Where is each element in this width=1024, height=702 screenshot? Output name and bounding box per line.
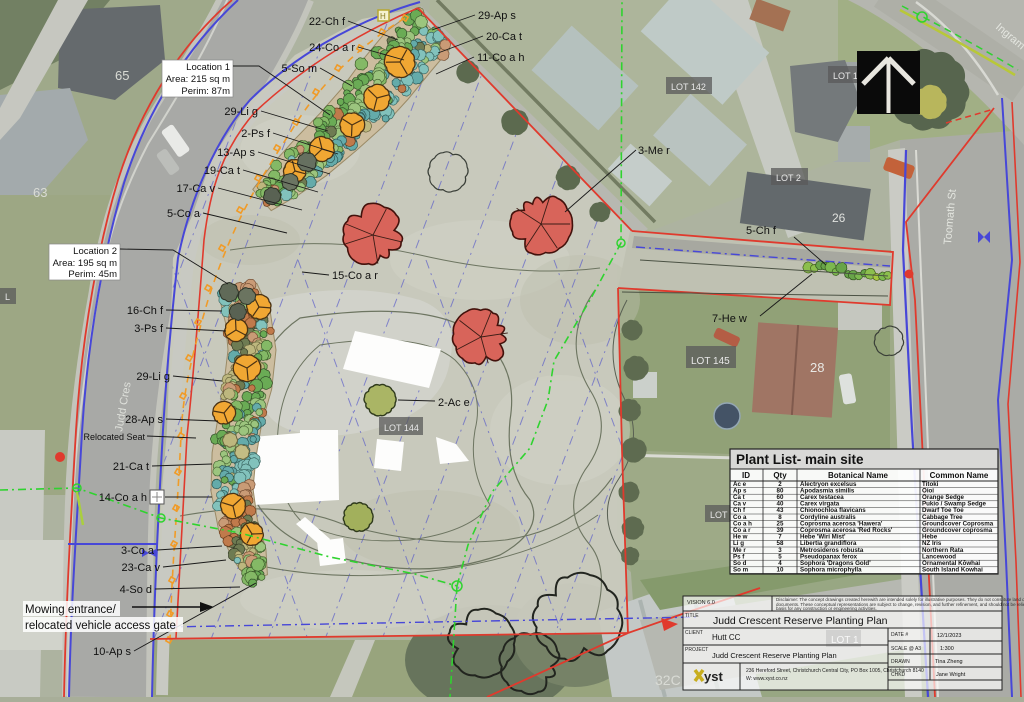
svg-text:TITLE: TITLE bbox=[685, 613, 699, 619]
svg-text:LOT 142: LOT 142 bbox=[671, 82, 706, 92]
svg-text:Tina Zheng: Tina Zheng bbox=[935, 659, 963, 665]
svg-text:LOT 145: LOT 145 bbox=[691, 356, 730, 367]
svg-text:2-Ac e: 2-Ac e bbox=[438, 397, 470, 409]
svg-text:32C: 32C bbox=[655, 672, 681, 688]
svg-text:basis for any construction or: basis for any construction or engineerin… bbox=[776, 606, 877, 611]
svg-text:DATE #: DATE # bbox=[891, 632, 908, 638]
svg-text:5-So m: 5-So m bbox=[282, 63, 317, 75]
svg-text:LOT 1: LOT 1 bbox=[833, 71, 858, 81]
svg-text:24-Co a r: 24-Co a r bbox=[309, 42, 355, 54]
svg-text:23-Ca v: 23-Ca v bbox=[121, 562, 160, 574]
svg-text:Botanical Name: Botanical Name bbox=[828, 471, 889, 480]
svg-text:13-Ap s: 13-Ap s bbox=[217, 147, 255, 159]
svg-text:Area: 215 sq m: Area: 215 sq m bbox=[166, 74, 231, 85]
svg-text:3-Co a: 3-Co a bbox=[121, 545, 155, 557]
svg-text:Sophora microphylla: Sophora microphylla bbox=[800, 567, 862, 574]
svg-text:4-So d: 4-So d bbox=[120, 584, 152, 596]
svg-text:2-Ps f: 2-Ps f bbox=[241, 128, 271, 140]
svg-text:14-Co a h: 14-Co a h bbox=[99, 492, 147, 504]
svg-text:DRAWN: DRAWN bbox=[891, 659, 910, 665]
svg-text:22-Ch f: 22-Ch f bbox=[309, 16, 346, 28]
svg-text:LOT 2: LOT 2 bbox=[776, 173, 801, 183]
svg-text:W: www.xyst.co.nz: W: www.xyst.co.nz bbox=[746, 676, 788, 682]
svg-text:1:300: 1:300 bbox=[940, 646, 954, 652]
svg-text:LOT: LOT bbox=[710, 510, 728, 520]
svg-text:236 Hereford Street, Christchu: 236 Hereford Street, Christchurch Centra… bbox=[746, 668, 924, 674]
svg-text:20-Ca t: 20-Ca t bbox=[486, 31, 522, 43]
svg-text:11-Co a h: 11-Co a h bbox=[477, 52, 525, 64]
svg-text:3-Me r: 3-Me r bbox=[638, 145, 670, 157]
svg-text:29-Li g: 29-Li g bbox=[224, 106, 258, 118]
svg-text:Perim: 45m: Perim: 45m bbox=[68, 269, 117, 280]
svg-text:PROJECT: PROJECT bbox=[685, 647, 708, 653]
svg-text:29-Li g: 29-Li g bbox=[136, 371, 170, 383]
svg-text:VISION 6.0: VISION 6.0 bbox=[687, 600, 715, 606]
svg-text:15-Co a r: 15-Co a r bbox=[332, 270, 378, 282]
svg-text:SCALE @ A3: SCALE @ A3 bbox=[891, 646, 921, 652]
svg-text:South Island Kowhai: South Island Kowhai bbox=[922, 567, 983, 574]
svg-text:relocated vehicle access gate: relocated vehicle access gate bbox=[25, 620, 176, 632]
svg-text:Judd Crescent Reserve Planting: Judd Crescent Reserve Planting Plan bbox=[713, 615, 888, 627]
svg-text:7-He w: 7-He w bbox=[712, 313, 747, 325]
svg-text:L: L bbox=[5, 292, 10, 302]
svg-text:Common Name: Common Name bbox=[930, 471, 989, 480]
svg-text:16-Ch f: 16-Ch f bbox=[127, 305, 164, 317]
svg-text:Location 1: Location 1 bbox=[186, 62, 230, 73]
svg-text:5-Co a: 5-Co a bbox=[167, 208, 201, 220]
svg-text:Hutt CC: Hutt CC bbox=[712, 633, 741, 642]
svg-text:19-Ca t: 19-Ca t bbox=[204, 165, 240, 177]
svg-text:Judd Crescent Reserve Planting: Judd Crescent Reserve Planting Plan bbox=[712, 651, 837, 660]
svg-text:Location 2: Location 2 bbox=[73, 246, 117, 257]
svg-text:So m: So m bbox=[733, 567, 749, 574]
svg-text:Relocated Seat: Relocated Seat bbox=[83, 432, 145, 442]
svg-text:Qty: Qty bbox=[773, 471, 787, 480]
svg-text:3-Ps f: 3-Ps f bbox=[134, 323, 164, 335]
svg-text:ID: ID bbox=[742, 471, 750, 480]
svg-text:21-Ca t: 21-Ca t bbox=[113, 461, 149, 473]
svg-text:29-Ap s: 29-Ap s bbox=[478, 10, 516, 22]
svg-text:10-Ap s: 10-Ap s bbox=[93, 646, 131, 658]
svg-text:65: 65 bbox=[115, 68, 129, 83]
svg-text:Perim: 87m: Perim: 87m bbox=[181, 86, 230, 97]
svg-text:H: H bbox=[380, 12, 386, 21]
svg-text:Plant List- main site: Plant List- main site bbox=[736, 452, 864, 467]
svg-text:63: 63 bbox=[33, 185, 47, 200]
svg-text:28-Ap s: 28-Ap s bbox=[125, 414, 163, 426]
svg-text:Area: 195 sq m: Area: 195 sq m bbox=[53, 258, 118, 269]
svg-text:Jane Wright: Jane Wright bbox=[936, 672, 966, 678]
svg-text:12/1/2023: 12/1/2023 bbox=[937, 633, 961, 639]
svg-text:yst: yst bbox=[704, 669, 723, 684]
svg-text:LOT 144: LOT 144 bbox=[384, 423, 419, 433]
svg-text:Mowing entrance/: Mowing entrance/ bbox=[25, 604, 117, 616]
svg-text:10: 10 bbox=[777, 567, 784, 574]
svg-text:17-Ca v: 17-Ca v bbox=[176, 183, 215, 195]
svg-text:CLIENT: CLIENT bbox=[685, 630, 703, 636]
svg-text:5-Ch f: 5-Ch f bbox=[746, 225, 777, 237]
